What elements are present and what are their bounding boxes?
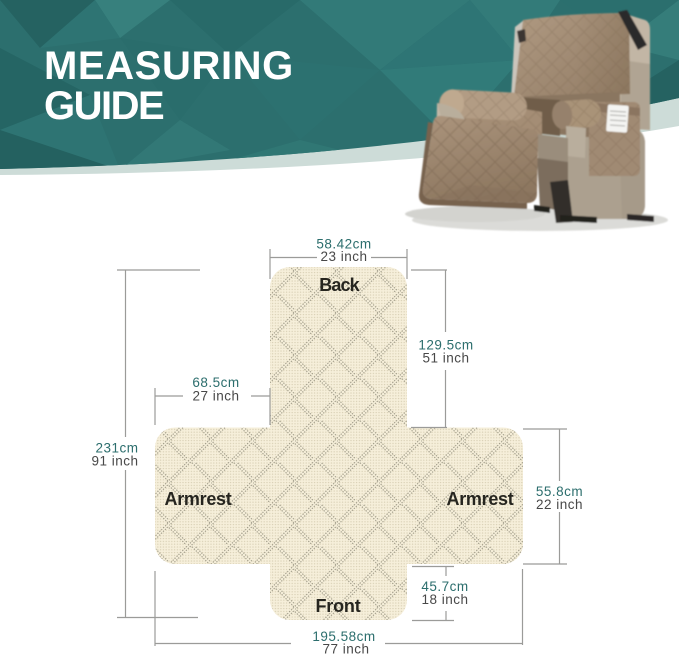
- svg-text:22 inch: 22 inch: [536, 497, 583, 512]
- svg-text:Front: Front: [316, 596, 361, 616]
- svg-text:Armrest: Armrest: [165, 489, 232, 509]
- svg-text:18 inch: 18 inch: [421, 592, 468, 607]
- svg-text:77 inch: 77 inch: [322, 642, 369, 655]
- svg-text:Back: Back: [319, 275, 360, 295]
- svg-text:51 inch: 51 inch: [422, 351, 469, 366]
- svg-text:23 inch: 23 inch: [320, 249, 367, 264]
- svg-text:Armrest: Armrest: [447, 489, 514, 509]
- svg-text:91 inch: 91 inch: [91, 454, 138, 469]
- svg-text:MEASURING: MEASURING: [44, 44, 294, 88]
- svg-text:GUIDE: GUIDE: [44, 84, 164, 128]
- svg-text:27 inch: 27 inch: [192, 389, 239, 404]
